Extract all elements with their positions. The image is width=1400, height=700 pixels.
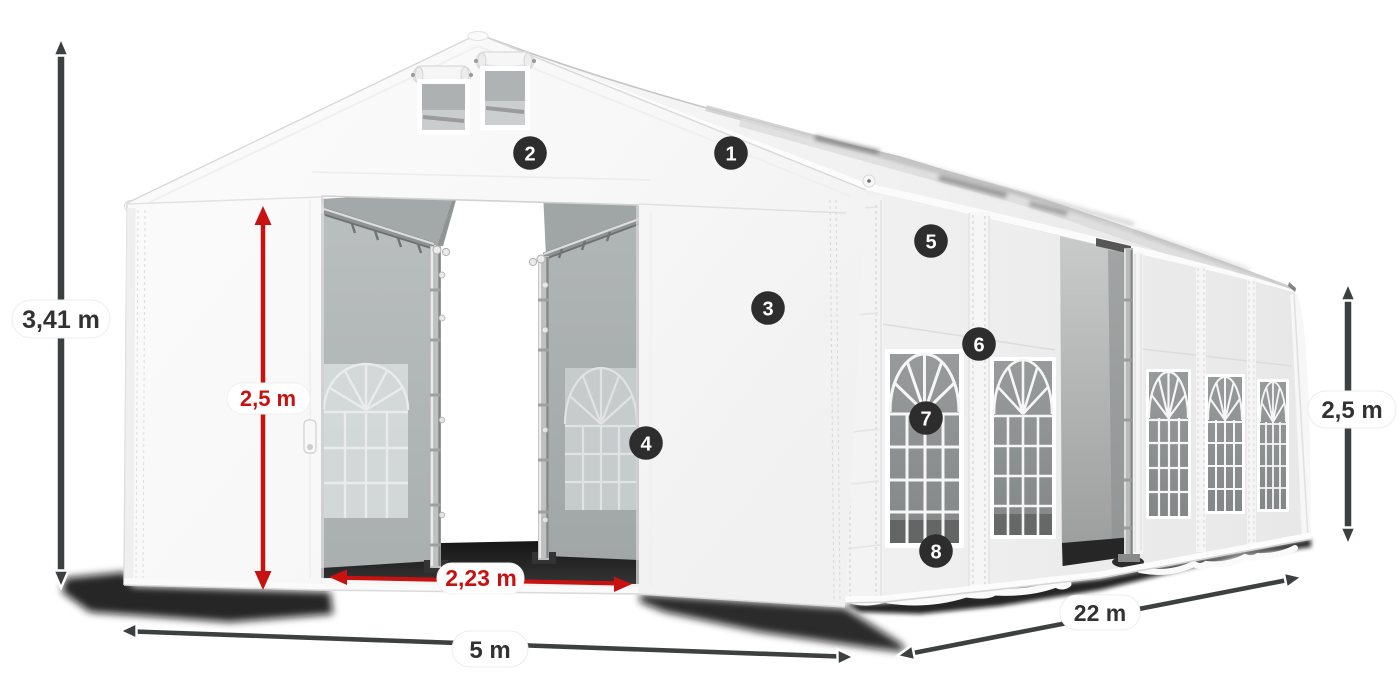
- svg-text:1: 1: [725, 144, 736, 166]
- svg-text:2: 2: [524, 144, 535, 166]
- svg-text:22 m: 22 m: [1074, 600, 1126, 626]
- svg-text:4: 4: [640, 434, 652, 456]
- svg-text:2,23 m: 2,23 m: [445, 565, 517, 591]
- svg-text:5: 5: [925, 232, 936, 254]
- svg-text:2,5 m: 2,5 m: [1321, 397, 1382, 424]
- svg-text:5 m: 5 m: [469, 637, 510, 664]
- svg-text:3,41 m: 3,41 m: [22, 306, 100, 334]
- svg-text:3: 3: [762, 299, 773, 321]
- svg-text:6: 6: [973, 335, 984, 357]
- svg-text:7: 7: [920, 409, 931, 431]
- svg-text:2,5 m: 2,5 m: [240, 386, 296, 411]
- svg-text:8: 8: [930, 542, 941, 564]
